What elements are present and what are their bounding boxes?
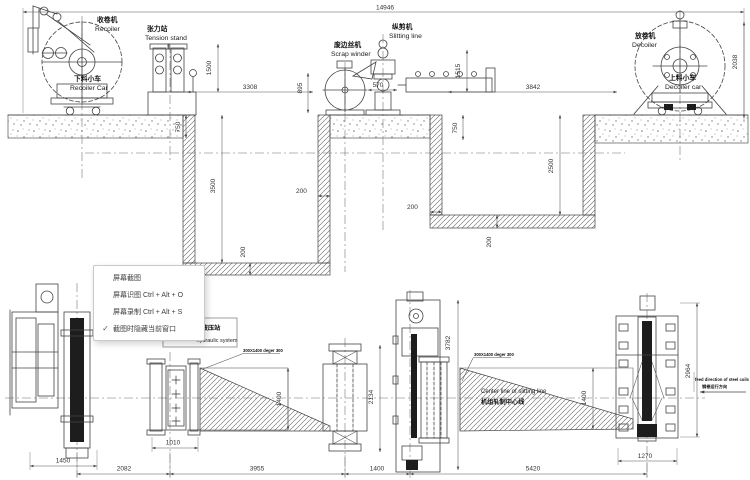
menu-item-screen-ocr[interactable]: 屏幕识图 Ctrl + Alt + O bbox=[94, 286, 204, 303]
cad-drawing: 液压站 hydraulic system 14946 2038 1500 330… bbox=[0, 0, 750, 480]
dim-5420: 5420 bbox=[526, 466, 541, 473]
label-decoiler-en: Decoiler bbox=[632, 42, 658, 49]
dim-2964: 2964 bbox=[685, 363, 692, 378]
menu-item-screen-capture[interactable]: 屏幕截图 bbox=[94, 269, 204, 286]
dim-1515: 1515 bbox=[455, 63, 462, 78]
pit-left bbox=[183, 115, 330, 275]
label-feed-direction-en: feed direction of steel coils bbox=[695, 377, 750, 382]
dim-1400-chain: 1400 bbox=[370, 466, 385, 473]
dim-1500: 1500 bbox=[206, 60, 213, 75]
svg-text:300X1400 deger 300: 300X1400 deger 300 bbox=[243, 348, 283, 353]
label-recoiler-car-zh: 下料小车 bbox=[74, 74, 101, 83]
dim-1450: 1450 bbox=[56, 458, 71, 465]
dim-1010: 1010 bbox=[166, 440, 181, 447]
tension-stand-plan bbox=[147, 359, 200, 435]
menu-item-label: 截图时隐藏当前窗口 bbox=[113, 324, 176, 334]
desktop-screenshot: 液压站 hydraulic system 14946 2038 1500 330… bbox=[0, 0, 750, 480]
label-slitting-en: Slitting line bbox=[389, 33, 422, 40]
coil-note-left: 300X1400 deger 300 bbox=[203, 348, 283, 369]
label-centerline-zh: 机组轧制中心线 bbox=[481, 398, 525, 406]
label-decoiler-zh: 放卷机 bbox=[634, 31, 656, 40]
dim-200-wall2: 200 bbox=[407, 204, 418, 211]
dim-200-floor1: 200 bbox=[240, 246, 247, 257]
svg-text:300X1400 deger 300: 300X1400 deger 300 bbox=[474, 352, 514, 357]
dim-750-left: 750 bbox=[175, 121, 182, 132]
dim-200-wall1: 200 bbox=[296, 188, 307, 195]
screenshot-context-menu: 屏幕截图 屏幕识图 Ctrl + Alt + O 屏幕录制 Ctrl + Alt… bbox=[93, 265, 205, 341]
scrap-winder-elevation bbox=[323, 61, 376, 115]
dim-1400-strip-right: 1400 bbox=[581, 390, 588, 405]
tension-stand-elevation bbox=[148, 44, 197, 115]
label-scrap-en: Scrap winder bbox=[331, 51, 371, 58]
label-recoiler-car-en: Recoiler Car bbox=[70, 85, 109, 92]
menu-item-label: 屏幕截图 bbox=[113, 273, 141, 283]
strip-wedge-left bbox=[200, 368, 330, 431]
label-feed-direction-zh: 钢卷运行方向 bbox=[702, 383, 727, 390]
dim-3842: 3842 bbox=[526, 84, 541, 91]
dim-3308: 3308 bbox=[243, 84, 258, 91]
centerlines bbox=[5, 10, 705, 477]
label-tension-zh: 张力站 bbox=[147, 24, 168, 33]
dim-895: 895 bbox=[297, 82, 304, 93]
check-icon: ✓ bbox=[98, 324, 113, 333]
label-decoiler-car-en: Decoiler car bbox=[665, 84, 702, 91]
dim-1270: 1270 bbox=[638, 453, 653, 460]
dim-3500: 3500 bbox=[210, 178, 217, 193]
label-tension-en: Tension stand bbox=[145, 35, 187, 42]
label-scrap-zh: 废边丝机 bbox=[334, 40, 361, 49]
label-slitting-zh: 纵剪机 bbox=[392, 22, 413, 31]
dim-2500: 2500 bbox=[548, 158, 555, 173]
label-centerline-en: Center line of slitting line bbox=[481, 389, 547, 395]
menu-item-label: 屏幕识图 Ctrl + Alt + O bbox=[113, 290, 183, 300]
slitting-machine-plan bbox=[393, 292, 449, 472]
dim-2038: 2038 bbox=[732, 54, 739, 69]
foundation-ground bbox=[8, 115, 748, 143]
dim-3782: 3782 bbox=[445, 335, 452, 350]
label-recoiler-zh: 收卷机 bbox=[97, 15, 118, 24]
dim-750-right: 750 bbox=[452, 122, 459, 133]
dim-2134: 2134 bbox=[368, 389, 375, 404]
recoiler-plan bbox=[10, 284, 93, 458]
label-decoiler-car-zh: 上料小车 bbox=[669, 73, 696, 82]
label-recoiler-en: Recoiler bbox=[95, 26, 121, 33]
dim-200-floor2: 200 bbox=[486, 236, 493, 247]
dim-1400-strip-left: 1400 bbox=[276, 391, 283, 406]
slitting-machine-elevation bbox=[366, 40, 495, 115]
menu-item-hide-window-when-capturing[interactable]: ✓ 截图时隐藏当前窗口 bbox=[94, 320, 204, 337]
dim-570: 570 bbox=[373, 82, 384, 89]
dim-2082: 2082 bbox=[117, 466, 132, 473]
menu-item-label: 屏幕录制 Ctrl + Alt + S bbox=[113, 307, 182, 317]
dim-3955: 3955 bbox=[250, 466, 265, 473]
menu-item-screen-record[interactable]: 屏幕录制 Ctrl + Alt + S bbox=[94, 303, 204, 320]
dim-total: 14946 bbox=[376, 5, 394, 12]
